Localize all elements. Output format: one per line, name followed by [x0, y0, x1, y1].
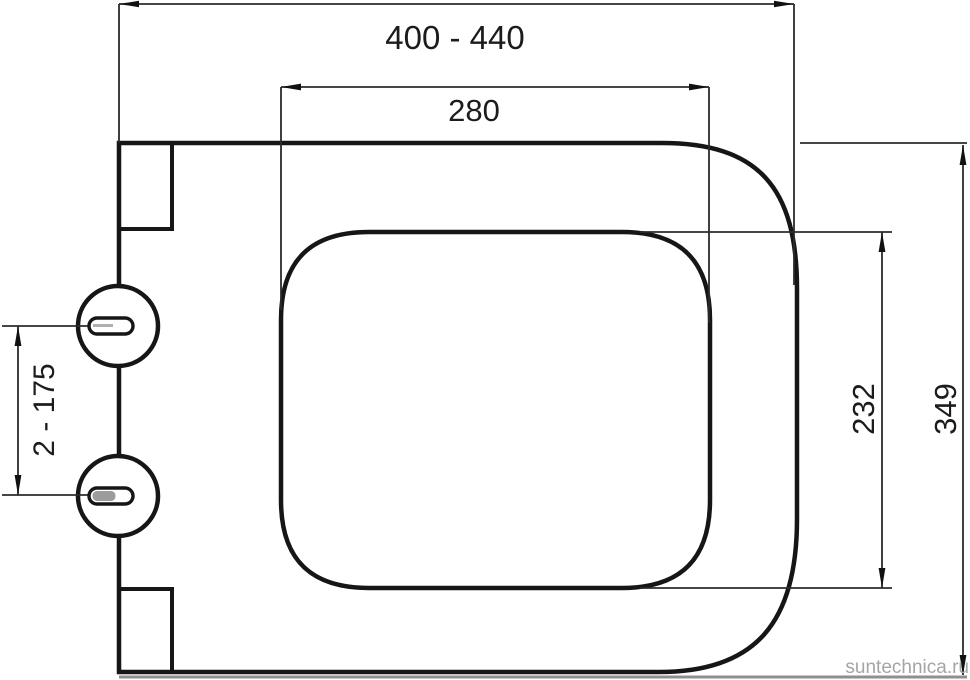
technical-drawing: 400 - 440 280 2 - 175 232 349	[0, 0, 970, 680]
arrowhead-top	[15, 326, 22, 346]
arrowhead-top	[960, 145, 967, 165]
hinge-slot-top	[89, 318, 133, 334]
hinge-slot-bottom	[89, 488, 133, 504]
slot-detail	[93, 324, 113, 327]
overall-depth-label: 349	[928, 383, 963, 435]
seat-opening-outline	[281, 232, 710, 588]
hinge-spacing-label: 2 - 175	[28, 363, 61, 456]
arrowhead-bottom	[15, 475, 22, 495]
technical-drawing-canvas: 400 - 440 280 2 - 175 232 349	[0, 0, 970, 680]
arrowhead-right	[774, 1, 794, 7]
arrowhead-bottom	[879, 568, 886, 588]
watermark-text: suntechnica.ru	[845, 657, 969, 678]
opening-depth-label: 232	[846, 383, 881, 435]
arrowhead-top	[879, 232, 886, 252]
arrowhead-left	[281, 84, 301, 91]
hinge-tab-bottom-left	[119, 589, 172, 672]
hinge-tab-top-left	[119, 143, 172, 229]
arrowhead-right	[689, 84, 709, 91]
arrowhead-left	[119, 1, 139, 7]
dimension-hinge-spacing: 2 - 175	[2, 326, 90, 495]
dimension-opening-depth: 232	[640, 232, 892, 588]
opening-width-label: 280	[448, 93, 500, 128]
seat-outer-outline	[119, 143, 797, 672]
overall-width-label: 400 - 440	[385, 19, 524, 56]
slot-detail	[93, 491, 116, 501]
dimension-overall-depth: 349	[800, 143, 967, 675]
dimension-opening-width: 280	[281, 84, 709, 323]
